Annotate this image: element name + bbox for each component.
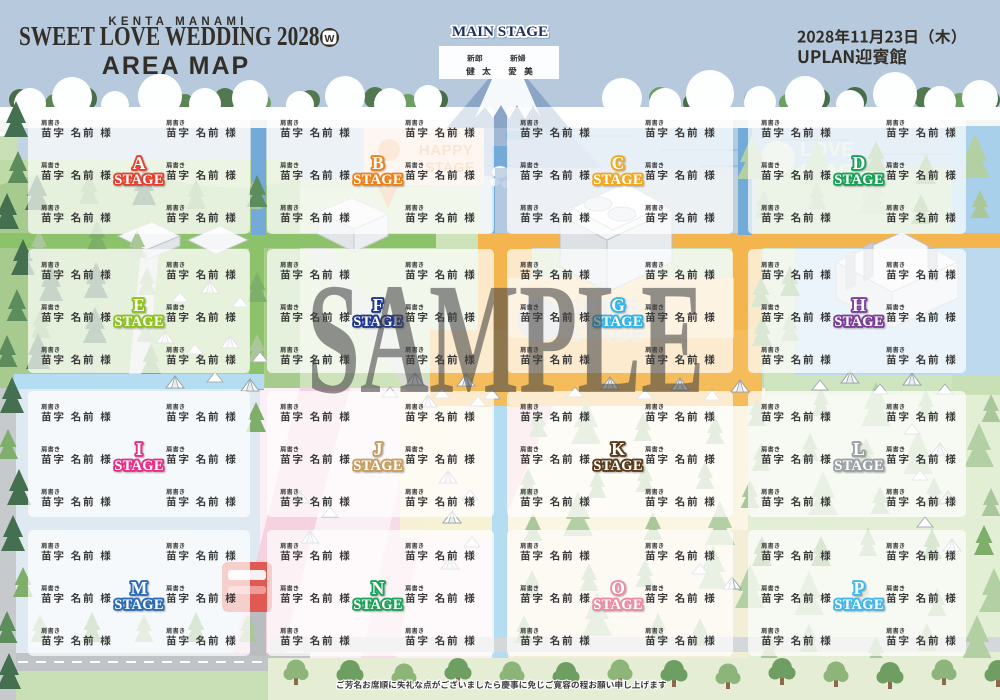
svg-text:C: C — [612, 153, 625, 173]
svg-text:E: E — [133, 295, 145, 315]
svg-text:STAGE: STAGE — [114, 458, 164, 474]
svg-text:STAGE: STAGE — [834, 314, 884, 330]
svg-text:D: D — [853, 153, 866, 173]
svg-text:STAGE: STAGE — [834, 172, 884, 188]
svg-text:P: P — [854, 578, 865, 598]
svg-text:MAIN STAGE: MAIN STAGE — [452, 23, 548, 40]
svg-text:A: A — [133, 153, 146, 173]
svg-text:O: O — [611, 578, 625, 598]
svg-text:STAGE: STAGE — [834, 458, 884, 474]
svg-text:N: N — [372, 578, 385, 598]
svg-text:STAGE: STAGE — [114, 314, 164, 330]
svg-text:K: K — [611, 439, 625, 459]
svg-text:STAGE: STAGE — [114, 597, 164, 613]
svg-text:M: M — [131, 578, 148, 598]
svg-text:SWEET LOVE WEDDING 2028: SWEET LOVE WEDDING 2028 — [19, 22, 320, 52]
svg-text:STAGE: STAGE — [353, 458, 403, 474]
svg-text:STAGE: STAGE — [593, 597, 643, 613]
svg-text:W: W — [325, 33, 335, 45]
svg-text:AREA MAP: AREA MAP — [102, 52, 250, 80]
svg-text:STAGE: STAGE — [593, 172, 643, 188]
svg-text:STAGE: STAGE — [114, 172, 164, 188]
svg-text:STAGE: STAGE — [353, 172, 403, 188]
svg-text:STAGE: STAGE — [834, 597, 884, 613]
svg-text:STAGE: STAGE — [593, 458, 643, 474]
svg-text:B: B — [372, 153, 384, 173]
svg-text:STAGE: STAGE — [353, 597, 403, 613]
svg-text:SAMPLE: SAMPLE — [307, 251, 705, 427]
svg-text:J: J — [374, 439, 383, 459]
svg-text:I: I — [136, 439, 143, 459]
svg-text:L: L — [853, 439, 865, 459]
svg-text:H: H — [852, 295, 866, 315]
